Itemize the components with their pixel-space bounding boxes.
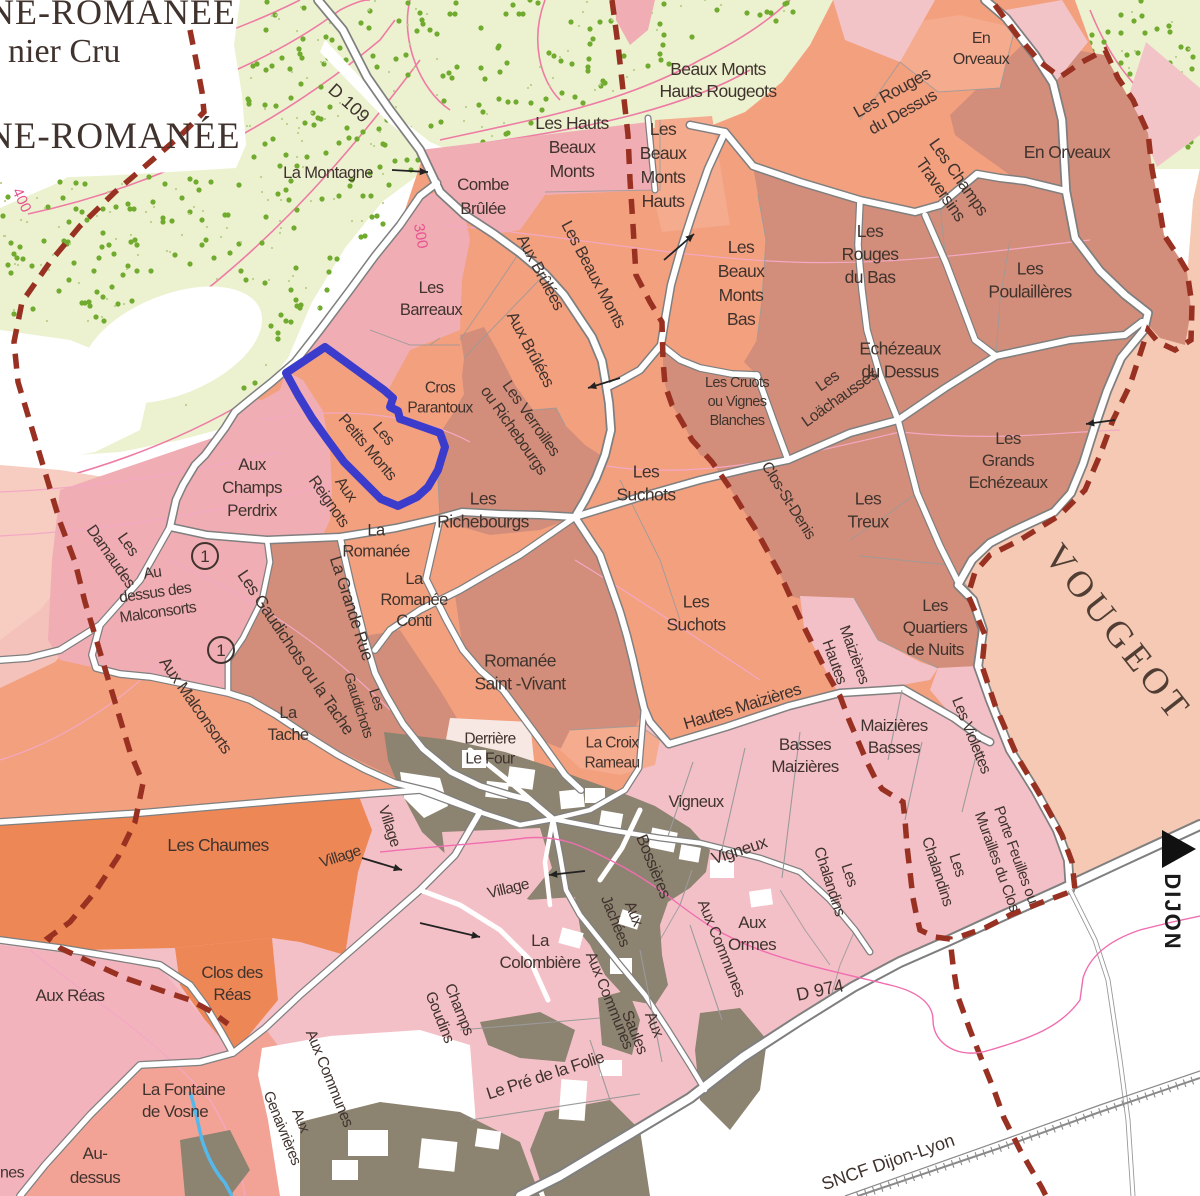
svg-text:Les: Les bbox=[922, 596, 948, 615]
svg-text:Richebourgs: Richebourgs bbox=[437, 512, 529, 532]
svg-text:Colombière: Colombière bbox=[500, 953, 581, 972]
svg-text:Treux: Treux bbox=[847, 512, 889, 532]
svg-text:Echézeaux: Echézeaux bbox=[859, 339, 941, 359]
svg-text:Les: Les bbox=[650, 119, 677, 139]
svg-text:Barreaux: Barreaux bbox=[400, 301, 464, 319]
svg-text:Echézeaux: Echézeaux bbox=[969, 473, 1049, 492]
svg-text:Brûlée: Brûlée bbox=[460, 199, 506, 218]
svg-text:Orveaux: Orveaux bbox=[953, 51, 1010, 68]
svg-text:Rouges: Rouges bbox=[842, 244, 900, 264]
svg-text:Monts: Monts bbox=[550, 161, 596, 181]
svg-text:Les: Les bbox=[470, 489, 497, 509]
svg-text:Romanée: Romanée bbox=[342, 542, 410, 560]
svg-text:Blanches: Blanches bbox=[710, 413, 765, 429]
svg-text:Beaux: Beaux bbox=[640, 143, 687, 163]
svg-text:Maizières: Maizières bbox=[771, 757, 838, 776]
svg-text:Tache: Tache bbox=[267, 726, 308, 744]
svg-text:Hauts Rougeots: Hauts Rougeots bbox=[659, 81, 777, 101]
svg-text:Au: Au bbox=[142, 563, 162, 582]
svg-text:Les Cruots: Les Cruots bbox=[705, 375, 769, 391]
svg-text:Les: Les bbox=[633, 462, 660, 482]
svg-text:nier Cru: nier Cru bbox=[8, 33, 120, 70]
svg-text:Derrière: Derrière bbox=[464, 730, 515, 747]
svg-text:NE-ROMANÉE: NE-ROMANÉE bbox=[0, 115, 241, 157]
svg-text:Monts: Monts bbox=[719, 285, 765, 305]
svg-text:Au-: Au- bbox=[83, 1144, 108, 1163]
svg-text:Les Chaumes: Les Chaumes bbox=[167, 835, 269, 855]
svg-text:Poulaillères: Poulaillères bbox=[988, 282, 1072, 302]
svg-text:Maizières: Maizières bbox=[860, 716, 927, 735]
svg-text:NE-ROMANÉE: NE-ROMANÉE bbox=[0, 0, 236, 32]
svg-text:nes: nes bbox=[0, 1165, 25, 1182]
svg-text:Romanée: Romanée bbox=[380, 591, 448, 609]
svg-text:Aux Réas: Aux Réas bbox=[36, 986, 105, 1005]
svg-text:Rameau: Rameau bbox=[585, 754, 640, 771]
svg-text:Vigneux: Vigneux bbox=[668, 793, 724, 811]
svg-text:Monts: Monts bbox=[641, 167, 687, 187]
svg-text:Ormes: Ormes bbox=[728, 935, 776, 954]
svg-text:1: 1 bbox=[216, 641, 225, 660]
svg-text:Bas: Bas bbox=[727, 309, 756, 329]
svg-text:En Orveaux: En Orveaux bbox=[1024, 142, 1111, 162]
svg-text:Basses: Basses bbox=[868, 738, 920, 757]
svg-text:Les: Les bbox=[683, 592, 710, 612]
svg-text:La Montagne: La Montagne bbox=[283, 164, 373, 182]
svg-text:Quartiers: Quartiers bbox=[903, 618, 968, 637]
svg-text:du Bas: du Bas bbox=[845, 267, 897, 287]
svg-text:Les: Les bbox=[995, 429, 1021, 448]
svg-text:Les: Les bbox=[857, 221, 884, 241]
svg-text:ou Vignes: ou Vignes bbox=[708, 394, 767, 410]
svg-text:Grands: Grands bbox=[982, 451, 1034, 470]
svg-text:Beaux: Beaux bbox=[718, 261, 765, 281]
svg-text:Réas: Réas bbox=[213, 985, 250, 1004]
svg-text:Romanée: Romanée bbox=[484, 651, 556, 671]
svg-text:La Fontaine: La Fontaine bbox=[142, 1080, 225, 1099]
svg-text:Perdrix: Perdrix bbox=[227, 501, 278, 520]
svg-text:Beaux: Beaux bbox=[549, 137, 596, 157]
svg-text:Beaux Monts: Beaux Monts bbox=[670, 59, 766, 79]
svg-text:Parantoux: Parantoux bbox=[407, 399, 473, 416]
svg-text:de Vosne: de Vosne bbox=[142, 1102, 208, 1121]
svg-text:1: 1 bbox=[200, 547, 209, 566]
svg-text:Cros: Cros bbox=[425, 379, 456, 396]
svg-text:En: En bbox=[972, 30, 990, 47]
svg-text:La: La bbox=[531, 931, 550, 950]
svg-text:Les: Les bbox=[728, 237, 755, 257]
svg-text:Les Hauts: Les Hauts bbox=[535, 113, 609, 133]
svg-text:Champs: Champs bbox=[222, 478, 282, 497]
svg-text:La: La bbox=[405, 570, 424, 588]
svg-text:DIJON: DIJON bbox=[1160, 873, 1185, 950]
svg-text:Les: Les bbox=[855, 489, 882, 509]
svg-text:Suchots: Suchots bbox=[666, 615, 726, 635]
svg-text:La: La bbox=[279, 704, 298, 722]
svg-text:Les: Les bbox=[1017, 259, 1044, 279]
svg-text:Combe: Combe bbox=[457, 175, 509, 194]
svg-text:La: La bbox=[367, 521, 386, 539]
svg-text:dessus: dessus bbox=[70, 1168, 120, 1187]
svg-text:Saint -Vivant: Saint -Vivant bbox=[474, 674, 566, 694]
svg-text:Le Four: Le Four bbox=[465, 750, 515, 767]
svg-text:Aux: Aux bbox=[738, 913, 767, 932]
svg-text:Clos des: Clos des bbox=[201, 963, 262, 982]
svg-text:Conti: Conti bbox=[396, 612, 432, 630]
svg-text:Suchots: Suchots bbox=[616, 485, 676, 505]
svg-text:de Nuits: de Nuits bbox=[906, 640, 964, 659]
svg-text:Basses: Basses bbox=[779, 735, 831, 754]
svg-text:Aux: Aux bbox=[238, 455, 267, 474]
svg-text:Hauts: Hauts bbox=[642, 191, 686, 211]
svg-text:La Croix: La Croix bbox=[586, 734, 640, 751]
svg-text:Les: Les bbox=[419, 279, 444, 297]
